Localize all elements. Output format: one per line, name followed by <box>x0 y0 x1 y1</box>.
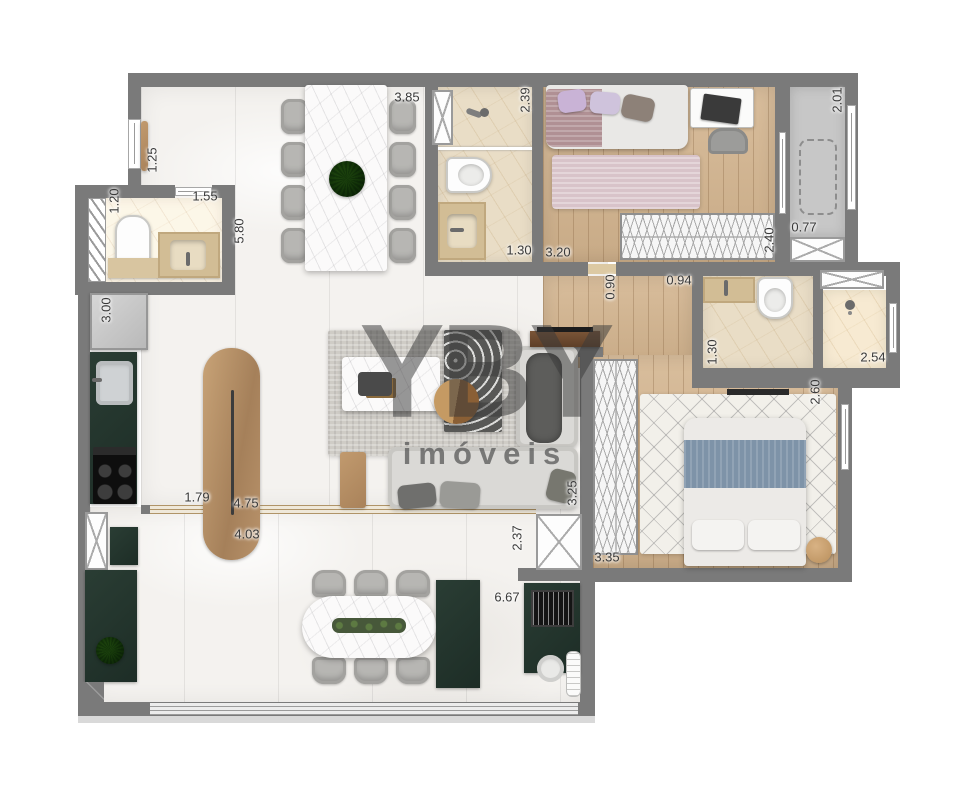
bathroom1-faucet <box>450 228 464 232</box>
terrace-plant <box>96 637 124 664</box>
shower-window <box>889 303 897 353</box>
sofa-pillow <box>439 481 481 510</box>
shaft-terrace <box>85 512 108 570</box>
bedroom1-wardrobe <box>620 213 775 260</box>
dimension-label-0.77: 0.77 <box>791 220 816 235</box>
sofa-side-table <box>340 452 366 508</box>
sofa-lounger-cushion <box>526 353 562 443</box>
dimension-label-6.67: 6.67 <box>494 590 519 605</box>
wall-top <box>128 73 858 87</box>
kitchen-faucet <box>92 378 102 382</box>
round-side-table <box>434 379 479 424</box>
master-bed-throw <box>684 440 806 488</box>
dining-centerpiece-plant <box>329 161 365 197</box>
cooktop <box>93 447 136 504</box>
wall-middle-a <box>425 262 588 276</box>
dimension-label-4.03: 4.03 <box>234 527 259 542</box>
desk-chair <box>708 128 748 154</box>
terrace-island <box>436 580 480 688</box>
towel-panel <box>566 651 581 697</box>
dimension-label-1.20: 1.20 <box>107 188 122 213</box>
dining-chair <box>281 142 308 177</box>
dimension-label-0.94: 0.94 <box>666 273 691 288</box>
terrace-counter-upper <box>110 527 138 565</box>
terrace-glass-rail <box>150 703 578 715</box>
terrace-chair <box>396 657 430 684</box>
bedroom1-door-sill <box>588 264 616 274</box>
dimension-label-2.54: 2.54 <box>860 350 885 365</box>
terrace-table-garland <box>332 618 406 633</box>
terrace-counter-left <box>85 570 137 682</box>
shaft-tech-balcony <box>790 237 845 262</box>
dimension-label-3.00: 3.00 <box>99 297 114 322</box>
master-pillow <box>692 520 744 550</box>
coffee-table-decor <box>358 372 392 396</box>
wall-hall-bathroom2 <box>692 276 703 368</box>
dimension-label-2.40: 2.40 <box>762 227 777 252</box>
sofa-pillow <box>397 482 437 510</box>
bathroom2-toilet-bowl <box>764 288 786 312</box>
dimension-label-2.60: 2.60 <box>808 379 823 404</box>
bathroom1-shower-glass <box>438 147 532 150</box>
wall-bathroom2-inner <box>813 276 823 368</box>
lavabo-vent-shaft <box>88 198 106 282</box>
kitchen-sink <box>96 361 133 405</box>
wall-master-top <box>692 368 900 388</box>
lavabo-faucet <box>186 252 190 266</box>
terrace-chair <box>312 657 346 684</box>
terrace-chair <box>312 570 346 597</box>
dimension-label-1.79: 1.79 <box>184 490 209 505</box>
dimension-label-3.35: 3.35 <box>594 550 619 565</box>
dimension-label-2.39: 2.39 <box>518 87 533 112</box>
terrace-chair <box>354 657 388 684</box>
bathroom1-toilet-bowl <box>458 164 484 186</box>
bedroom1-pillow <box>589 91 621 116</box>
floor-plan: YBY imóveis 1.251.201.555.803.852.391.30… <box>0 0 956 798</box>
wall-left-upper-b <box>128 169 141 185</box>
dining-chair <box>389 185 416 220</box>
wall-bathroom1-right <box>532 87 543 262</box>
shower-head-dot <box>480 108 489 117</box>
tech-balcony-window <box>847 105 856 210</box>
dining-chair <box>389 142 416 177</box>
dimension-label-0.90: 0.90 <box>603 274 618 299</box>
dimension-label-5.80: 5.80 <box>232 218 247 243</box>
master-pillow <box>748 520 800 550</box>
entry-door-opening <box>128 119 141 169</box>
wall-terrace-right <box>580 568 595 716</box>
bathroom2-sink-counter <box>703 277 755 303</box>
dimension-label-1.25: 1.25 <box>145 147 160 172</box>
master-wardrobe <box>593 359 638 555</box>
terrace-chair <box>354 570 388 597</box>
slider-stub-left <box>141 505 150 514</box>
lavabo-wall-left <box>75 185 88 295</box>
dining-chair <box>389 228 416 263</box>
dimension-label-2.01: 2.01 <box>830 87 845 112</box>
dining-chair <box>281 228 308 263</box>
dimension-label-1.30: 1.30 <box>705 339 720 364</box>
dimension-label-1.30: 1.30 <box>506 243 531 258</box>
dimension-label-1.55: 1.55 <box>192 189 217 204</box>
terrace-chair <box>396 570 430 597</box>
terrace-corner <box>80 682 104 703</box>
master-window <box>841 404 849 470</box>
dimension-label-4.75: 4.75 <box>233 496 258 511</box>
shaft-bathroom1 <box>432 90 453 145</box>
bedroom1-rug <box>552 155 700 209</box>
wall-master-bottom <box>593 568 852 582</box>
tv-console <box>530 331 600 347</box>
tv <box>537 327 593 332</box>
dining-chair <box>281 99 308 134</box>
shower-head-bathroom2 <box>845 300 855 310</box>
wall-left-upper-a <box>128 87 141 119</box>
shaft-center <box>536 514 582 570</box>
ac-unit-dashed <box>799 139 837 215</box>
dining-chair <box>281 185 308 220</box>
laptop <box>700 93 741 124</box>
master-tv-panel <box>727 389 789 395</box>
dimension-label-2.37: 2.37 <box>510 525 525 550</box>
master-pouf <box>806 537 832 563</box>
bathroom2-faucet <box>724 280 728 296</box>
lavabo-wall-top-a <box>75 185 175 198</box>
shaft-bathroom2 <box>820 270 884 289</box>
grill <box>531 590 574 627</box>
dimension-label-3.20: 3.20 <box>545 245 570 260</box>
terrace-round-sink <box>537 655 564 682</box>
dimension-label-3.85: 3.85 <box>394 90 419 105</box>
bedroom1-side-window <box>779 132 786 214</box>
bedroom1-pillow <box>557 88 588 114</box>
dimension-label-3.25: 3.25 <box>565 480 580 505</box>
building-edge <box>78 716 595 723</box>
